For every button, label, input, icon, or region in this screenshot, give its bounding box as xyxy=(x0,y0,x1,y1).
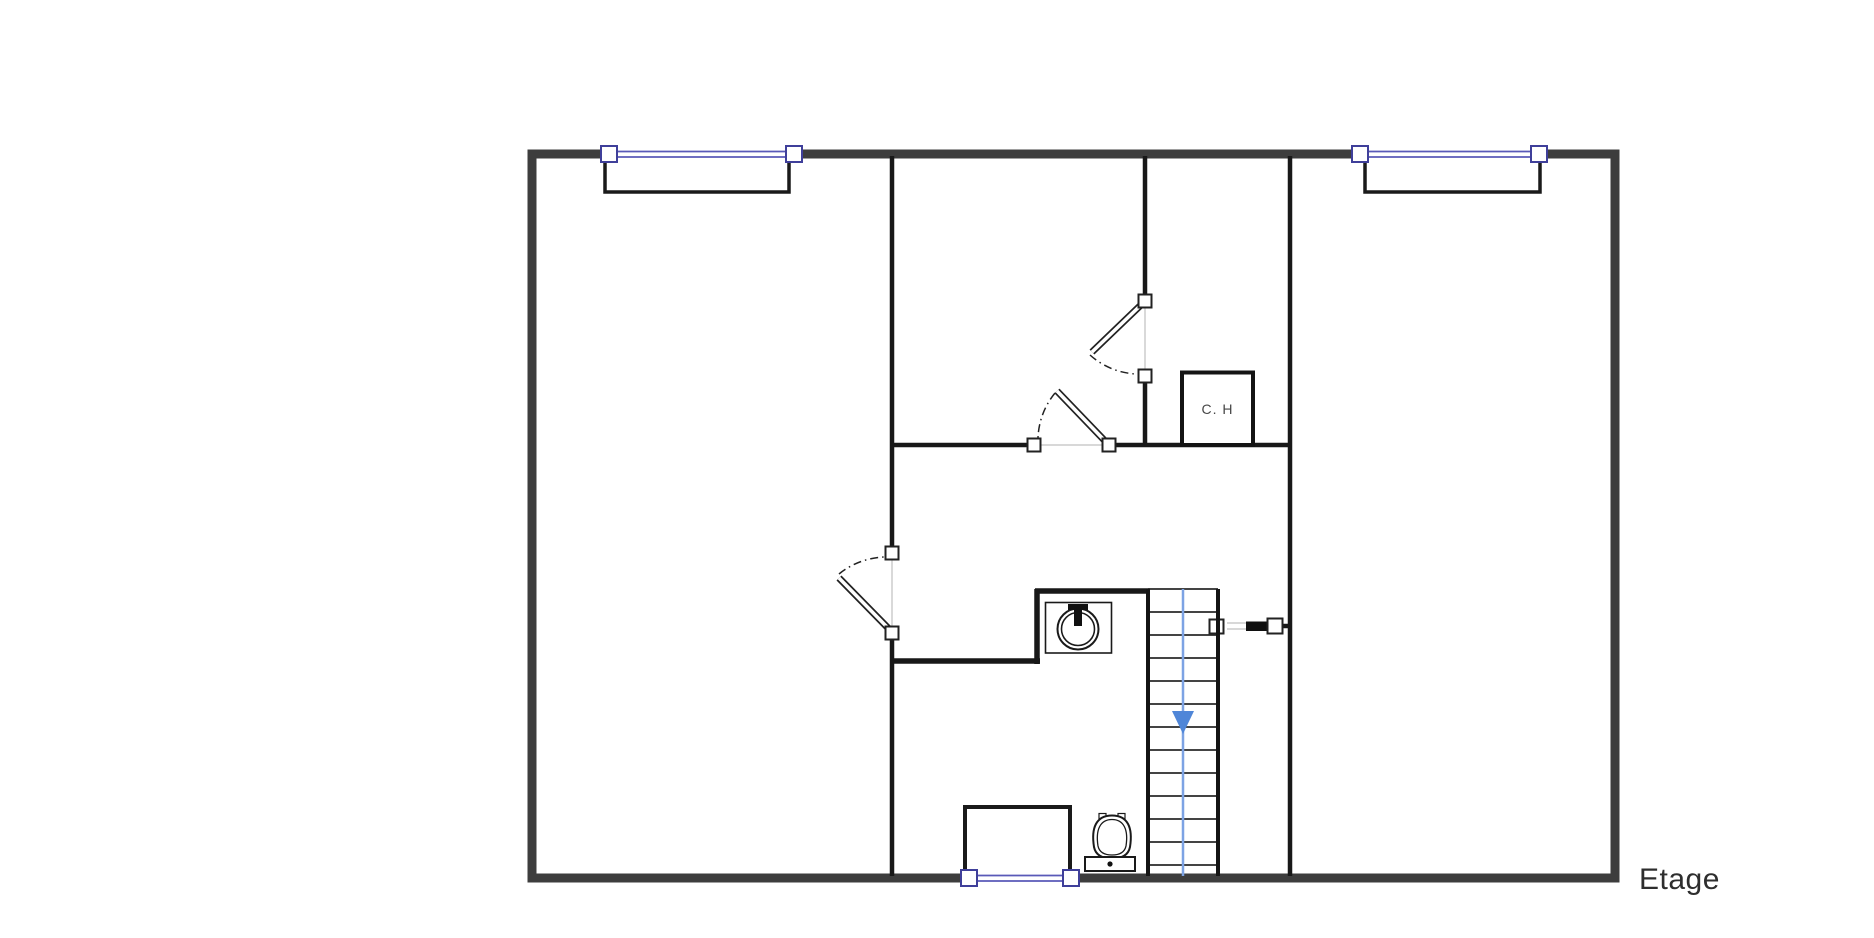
toilet-bowl-outer xyxy=(1093,816,1131,859)
toilet-flush-button xyxy=(1107,861,1112,866)
window-sill xyxy=(1365,158,1540,192)
stairs-down-arrow-icon xyxy=(1172,711,1194,734)
door-corridor xyxy=(1028,391,1116,452)
exterior-wall-outline xyxy=(532,154,1615,878)
door-swing-arc xyxy=(1090,355,1142,374)
door-jamb-icon xyxy=(1268,619,1283,634)
door-jamb-icon xyxy=(1139,370,1152,383)
toilet-icon xyxy=(1085,814,1135,872)
window-top-left xyxy=(601,146,802,192)
window-jamb-icon xyxy=(1352,146,1368,162)
door-jamb-icon xyxy=(1139,295,1152,308)
window-jamb-icon xyxy=(961,870,977,886)
window-recess xyxy=(965,807,1070,874)
door-upper-room xyxy=(1090,295,1152,383)
outer-walls xyxy=(532,154,1615,878)
window-jamb-icon xyxy=(1531,146,1547,162)
floor-label: Etage xyxy=(1639,863,1720,897)
door-leaf-fill xyxy=(839,578,890,630)
door-left-room xyxy=(839,547,899,640)
water-heater-label: C. H xyxy=(1182,401,1253,417)
door-jamb-icon xyxy=(886,547,899,560)
floorplan-canvas: C. H Etage xyxy=(0,0,1874,938)
window-jamb-icon xyxy=(601,146,617,162)
window-top-right xyxy=(1352,146,1547,192)
washbasin-icon xyxy=(1046,603,1112,654)
door-leaf-fill xyxy=(1092,303,1143,352)
window-jamb-icon xyxy=(786,146,802,162)
door-right-room-closed xyxy=(1210,619,1292,634)
interior-walls xyxy=(890,156,1292,876)
washbasin-tap-icon xyxy=(1074,604,1082,626)
stairs-going-down xyxy=(1148,589,1218,876)
door-jamb-icon xyxy=(1103,439,1116,452)
door-swing-arc xyxy=(1038,393,1055,438)
window-bottom xyxy=(961,807,1079,886)
window-jamb-icon xyxy=(1063,870,1079,886)
door-jamb-icon xyxy=(1028,439,1041,452)
window-sill xyxy=(605,158,789,192)
door-jamb-icon xyxy=(886,627,899,640)
floorplan-drawing xyxy=(0,0,1874,938)
door-swing-arc xyxy=(839,557,889,574)
closed-door-slab-icon xyxy=(1246,622,1267,632)
door-leaf-fill xyxy=(1057,391,1106,442)
